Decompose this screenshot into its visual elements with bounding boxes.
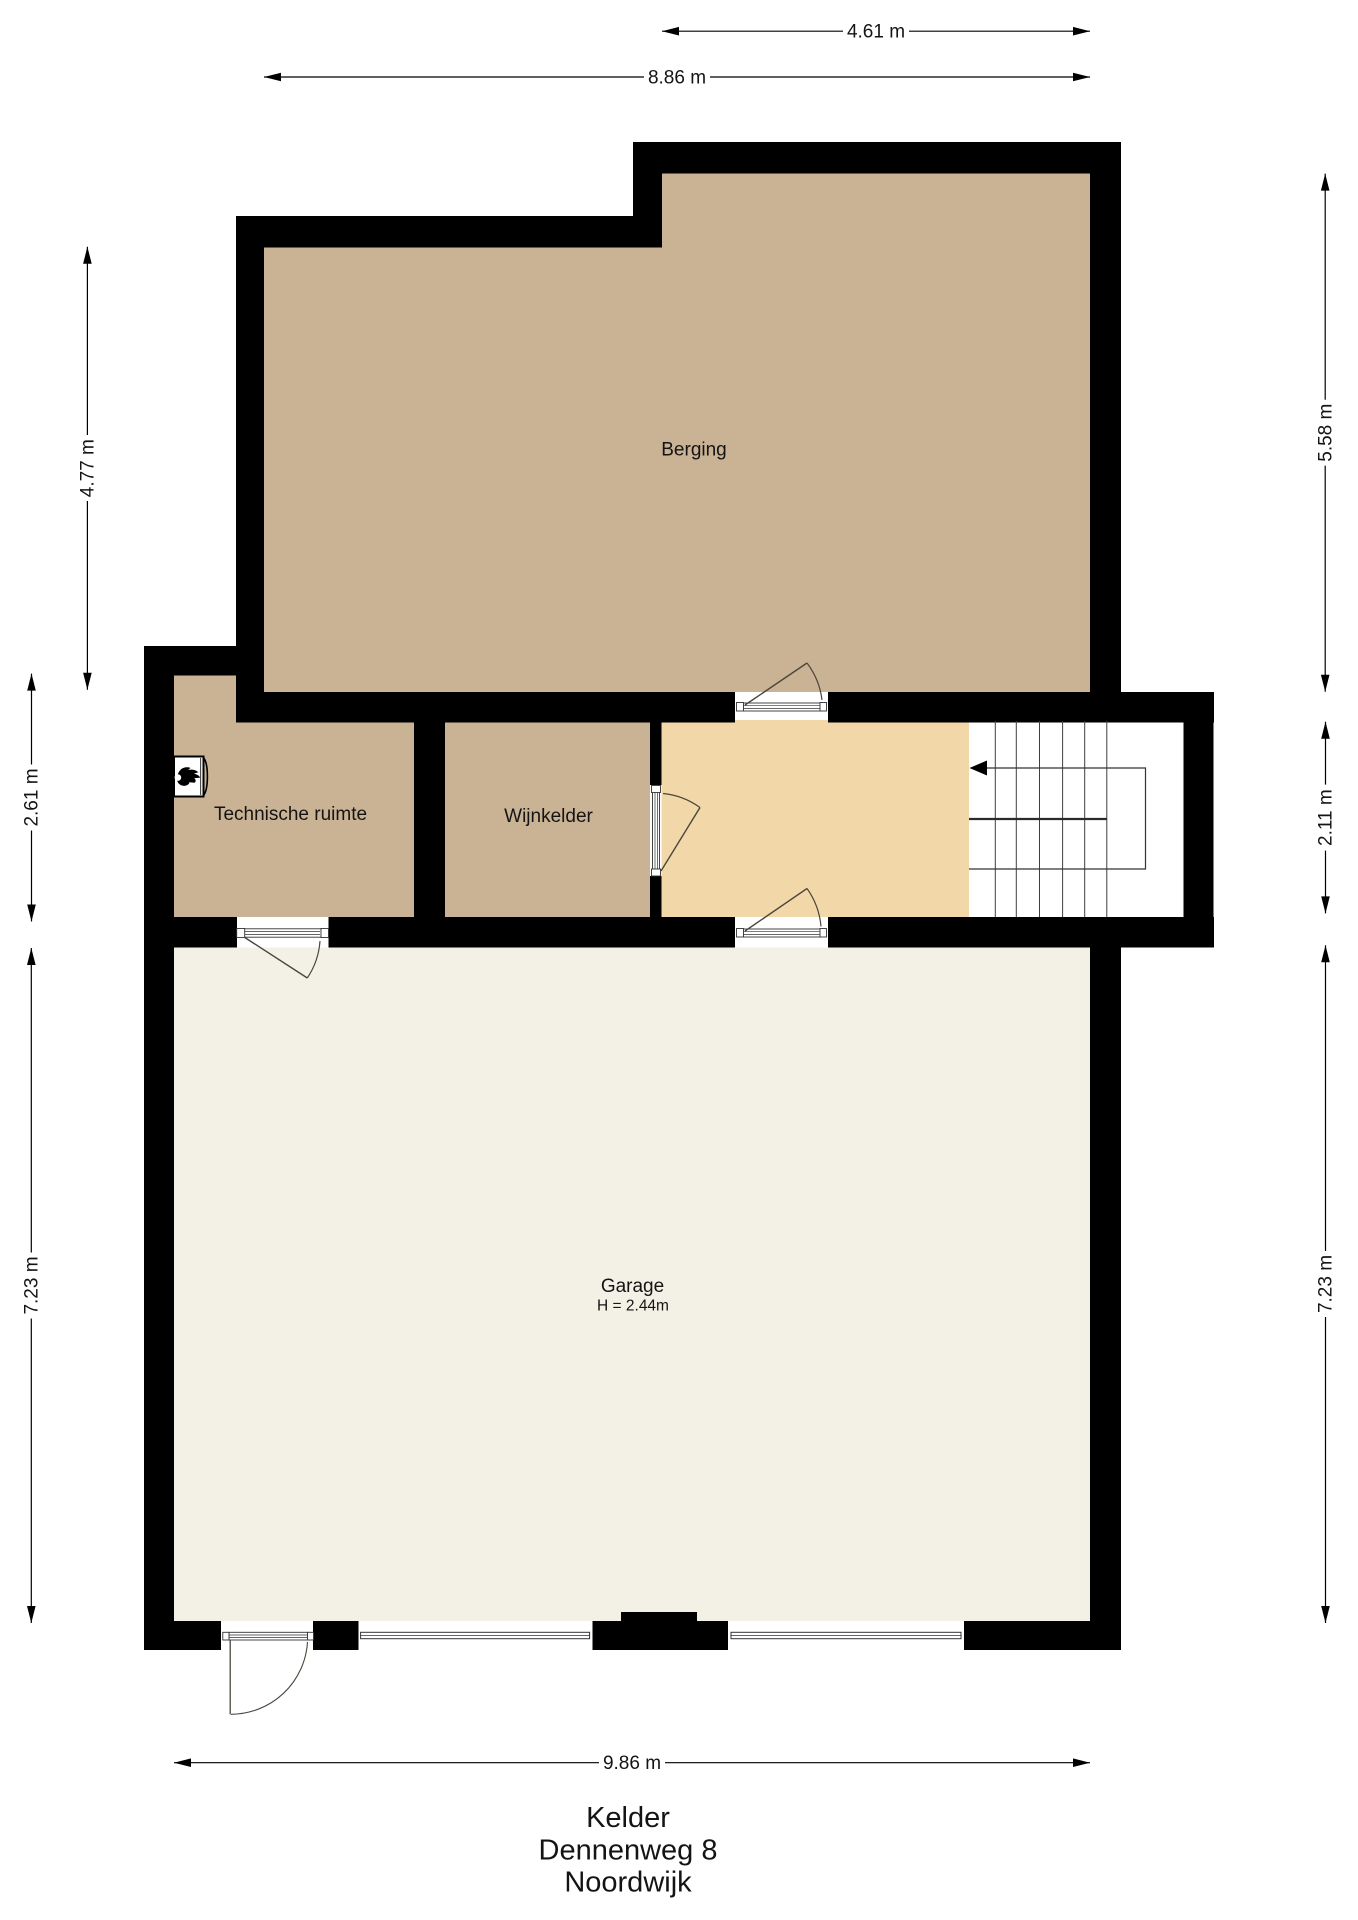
svg-text:2.61 m: 2.61 m [22, 768, 43, 826]
svg-text:4.77 m: 4.77 m [78, 439, 99, 497]
svg-text:8.86 m: 8.86 m [648, 67, 706, 88]
svg-text:Dennenweg 8: Dennenweg 8 [539, 1835, 718, 1867]
svg-text:Berging: Berging [661, 440, 727, 461]
svg-text:9.86 m: 9.86 m [603, 1753, 661, 1774]
svg-text:H = 2.44m: H = 2.44m [597, 1298, 669, 1315]
svg-text:7.23 m: 7.23 m [21, 1256, 42, 1314]
svg-text:5.58 m: 5.58 m [1315, 404, 1336, 462]
svg-text:7.23 m: 7.23 m [1316, 1255, 1337, 1313]
svg-text:Technische ruimte: Technische ruimte [214, 804, 367, 825]
svg-text:Wijnkelder: Wijnkelder [504, 806, 593, 827]
svg-text:Kelder: Kelder [586, 1802, 670, 1834]
svg-text:2.11 m: 2.11 m [1316, 789, 1337, 846]
svg-text:4.61 m: 4.61 m [847, 22, 905, 43]
svg-text:Garage: Garage [601, 1276, 664, 1297]
svg-text:Noordwijk: Noordwijk [564, 1867, 692, 1899]
